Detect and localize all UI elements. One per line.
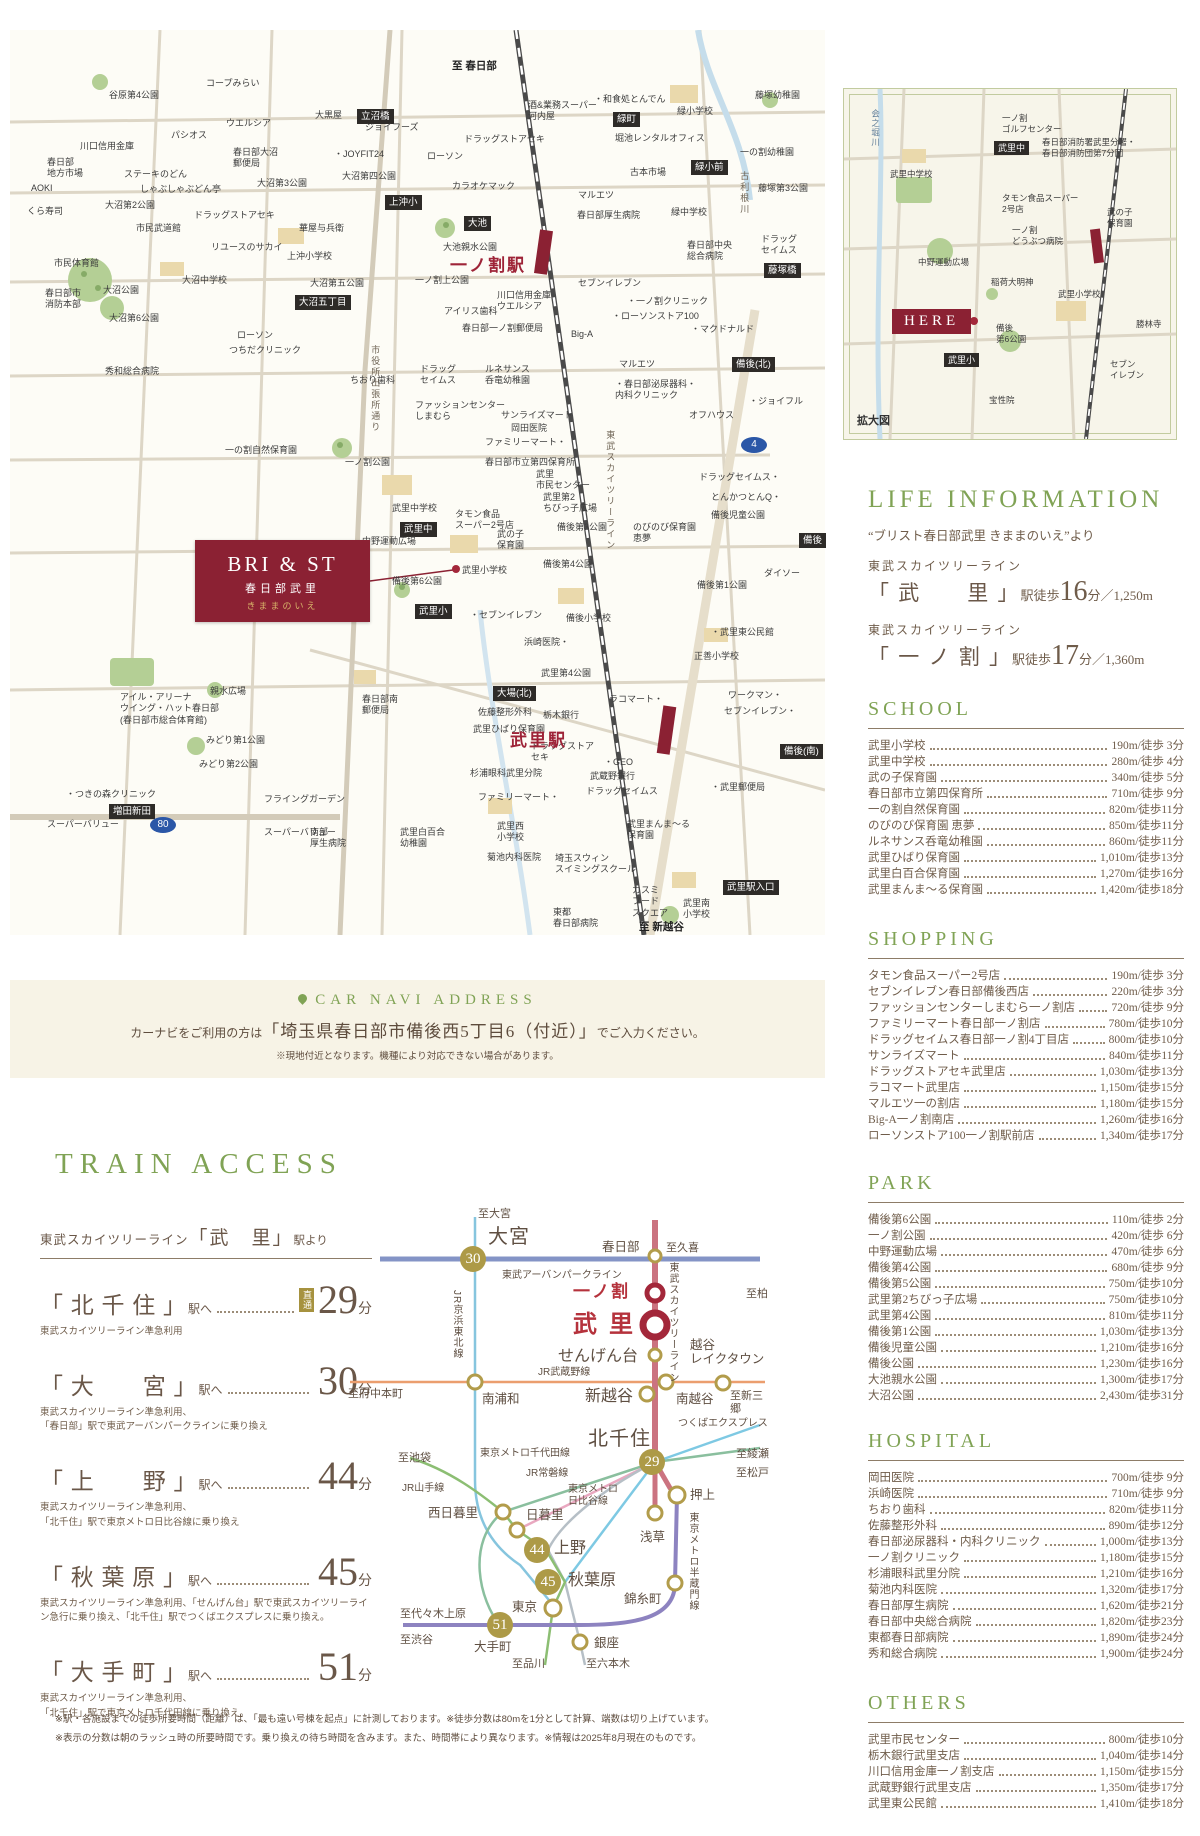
facility-name: のびのび保育園 恵夢 bbox=[868, 818, 974, 834]
facility-distance: 1,180m/徒歩15分 bbox=[1100, 1096, 1184, 1112]
facility-row: 一ノ割公園 420m/徒歩 6分 bbox=[868, 1228, 1184, 1244]
map-label: しゃぶしゃぶどん亭 bbox=[140, 184, 221, 195]
facility-name: 武里ひばり保育園 bbox=[868, 850, 960, 866]
map-label: 親水広場 bbox=[210, 686, 246, 697]
divider bbox=[868, 958, 1184, 959]
map-label: 武里第4公園 bbox=[541, 668, 591, 679]
dotted-leader bbox=[935, 1334, 1096, 1336]
life-information-subtitle: “ブリスト春日部武里 きままのいえ”より bbox=[868, 525, 1184, 544]
facility-row: 備後第6公園 110m/徒歩 2分 bbox=[868, 1212, 1184, 1228]
facility-distance: 780m/徒歩10分 bbox=[1109, 1016, 1184, 1032]
facility-distance: 800m/徒歩10分 bbox=[1109, 1732, 1184, 1748]
map-label: Big-A bbox=[571, 329, 593, 340]
train-access-entry: 「 大 宮 」 駅へ 30 分 東武スカイツリーライン準急利用、 「春日部」駅で… bbox=[40, 1361, 372, 1435]
footnote-line-1: ※駅・各施設までの徒歩所要時間（距離）は、「最も遠い号棟を起点」に計測しておりま… bbox=[55, 1710, 735, 1729]
facility-distance: 1,340m/徒歩17分 bbox=[1100, 1128, 1184, 1144]
park-rows: 備後第6公園 110m/徒歩 2分 一ノ割公園 420m/徒歩 6分 中野運動広… bbox=[868, 1212, 1184, 1404]
rail-line-name: 東武スカイツリーライン bbox=[868, 621, 1184, 638]
shopping-section: SHOPPING タモン食品スーパー2号店 190m/徒歩 3分 セブンイレブン… bbox=[868, 928, 1184, 1144]
map-label: ジョイフーズ bbox=[365, 122, 419, 133]
map-label: 武里小学校 bbox=[462, 565, 507, 576]
dotted-leader bbox=[987, 892, 1096, 894]
others-section: OTHERS 武里市民センター 800m/徒歩10分 栃木銀行武里支店 1,04… bbox=[868, 1692, 1184, 1812]
map-label: リユースのサカイ bbox=[211, 242, 283, 253]
facility-name: 佐藤整形外科 bbox=[868, 1518, 937, 1534]
map-label: 栃木銀行 bbox=[543, 710, 579, 721]
life-line-2: 東武スカイツリーライン 「 一 ノ 割 」駅徒歩17分／1,360m bbox=[868, 621, 1184, 672]
facility-distance: 1,270m/徒歩16分 bbox=[1100, 866, 1184, 882]
dotted-leader bbox=[1079, 1010, 1107, 1012]
area-map: 谷原第4公園コープみらい至 春日部酒&業務スーパー 河内屋・和食処とんでん緑小学… bbox=[10, 30, 825, 935]
map-label: ラコマート・ bbox=[609, 694, 663, 705]
destination-station: 「 秋 葉 原 」 bbox=[40, 1558, 187, 1592]
destination-suffix: 駅へ bbox=[199, 1476, 223, 1493]
map-label: 大沼第四公園 bbox=[342, 171, 396, 182]
route-notes: 東武スカイツリーライン準急利用、 「北千住」駅で東京メトロ日比谷線に乗り換え bbox=[40, 1501, 372, 1530]
facility-row: 栃木銀行武里支店 1,040m/徒歩14分 bbox=[868, 1748, 1184, 1764]
facility-name: 武里第4公園 bbox=[868, 1308, 931, 1324]
map-label: ・武里郵便局 bbox=[711, 782, 765, 793]
facility-name: ちおり歯科 bbox=[868, 1502, 926, 1518]
dotted-leader bbox=[935, 1318, 1105, 1320]
destination-suffix: 駅へ bbox=[188, 1572, 212, 1589]
map-label: セブンイレブン bbox=[578, 278, 641, 289]
map-label: カスミ フード スクエア bbox=[632, 885, 668, 919]
diagram-label: つくばエクスプレス bbox=[678, 1418, 768, 1430]
facility-distance: 1,150m/徒歩15分 bbox=[1100, 1080, 1184, 1096]
divider bbox=[40, 1258, 372, 1259]
facility-row: ドラッグセイムス春日部一ノ割4丁目店 800m/徒歩10分 bbox=[868, 1032, 1184, 1048]
facility-name: 備後第6公園 bbox=[868, 1212, 931, 1228]
dotted-leader bbox=[964, 1560, 1096, 1562]
map-label: ・和食処とんでん bbox=[594, 94, 666, 105]
facility-distance: 700m/徒歩 9分 bbox=[1111, 1470, 1184, 1486]
dotted-leader bbox=[228, 1392, 309, 1394]
dotted-leader bbox=[964, 1576, 1096, 1578]
map-label: 酒&業務スーパー 河内屋 bbox=[528, 100, 597, 123]
facility-row: 備後第5公園 750m/徒歩10分 bbox=[868, 1276, 1184, 1292]
diagram-label: 武 里 bbox=[573, 1312, 636, 1340]
facility-name: ローソンストア100一ノ割駅前店 bbox=[868, 1128, 1035, 1144]
facility-row: ラコマート武里店 1,150m/徒歩15分 bbox=[868, 1080, 1184, 1096]
facility-row: 大池親水公園 1,300m/徒歩17分 bbox=[868, 1372, 1184, 1388]
facility-distance: 1,900m/徒歩24分 bbox=[1100, 1646, 1184, 1662]
dotted-leader bbox=[964, 860, 1096, 862]
facility-name: 大池親水公園 bbox=[868, 1372, 937, 1388]
facility-row: 佐藤整形外科 890m/徒歩12分 bbox=[868, 1518, 1184, 1534]
map-label: 正善小学校 bbox=[694, 651, 739, 662]
facility-name: 武里小学校 bbox=[868, 738, 926, 754]
diagram-label: JR山手線 bbox=[402, 1483, 444, 1495]
divider bbox=[868, 1460, 1184, 1461]
life-information-title: LIFE INFORMATION bbox=[868, 486, 1184, 514]
map-label: 一の割自然保育園 bbox=[225, 445, 297, 456]
life-line-1: 東武スカイツリーライン 「 武 里 」駅徒歩16分／1,250m bbox=[868, 557, 1184, 608]
facility-row: サンライズマート 840m/徒歩11分 bbox=[868, 1048, 1184, 1064]
facility-distance: 800m/徒歩10分 bbox=[1109, 1032, 1184, 1048]
map-label: 一ノ割上公園 bbox=[415, 275, 469, 286]
map-label: 埼玉スウィン スイミングスクール bbox=[555, 853, 636, 876]
facility-distance: 1,040m/徒歩14分 bbox=[1100, 1748, 1184, 1764]
facility-name: 一ノ割クリニック bbox=[868, 1550, 960, 1566]
map-label: ワークマン・ bbox=[728, 690, 782, 701]
diagram-label: 東武アーバンパークライン bbox=[502, 1270, 622, 1282]
facility-row: 武蔵野銀行武里支店 1,350m/徒歩17分 bbox=[868, 1780, 1184, 1796]
dotted-leader bbox=[918, 1496, 1107, 1498]
facility-name: 一の割自然保育園 bbox=[868, 802, 960, 818]
facility-row: 武の子保育園 340m/徒歩 5分 bbox=[868, 770, 1184, 786]
facility-row: タモン食品スーパー2号店 190m/徒歩 3分 bbox=[868, 968, 1184, 984]
destination-station: 「 上 野 」 bbox=[40, 1462, 198, 1496]
facility-distance: 710m/徒歩 9分 bbox=[1111, 1486, 1184, 1502]
divider bbox=[868, 1722, 1184, 1723]
map-label: 大沼五丁目 bbox=[295, 295, 351, 310]
map-label: ファッションセンター しまむら bbox=[415, 400, 505, 423]
diagram-label: 日暮里 bbox=[526, 1508, 564, 1522]
train-access-entry: 「 秋 葉 原 」 駅へ 45 分 東武スカイツリーライン準急利用、「せんげん台… bbox=[40, 1552, 372, 1626]
facility-name: 杉浦眼科武里分院 bbox=[868, 1566, 960, 1582]
map-label: カラオケマック bbox=[452, 181, 515, 192]
school-title: SCHOOL bbox=[868, 698, 1184, 721]
diagram-label: 45 bbox=[535, 1569, 561, 1595]
facility-name: サンライズマート bbox=[868, 1048, 960, 1064]
property-tagline: きままのいえ bbox=[195, 599, 370, 612]
map-label: スーパーバリュー bbox=[47, 819, 119, 830]
map-label: 備後第6公園 bbox=[392, 576, 442, 587]
route-notes: 東武スカイツリーライン準急利用、「せんげん台」駅で東武スカイツリーライン急行に乗… bbox=[40, 1597, 372, 1626]
facility-name: マルエツ一の割店 bbox=[868, 1096, 960, 1112]
diagram-label: 越谷 レイクタウン bbox=[690, 1338, 764, 1367]
map-label: ・武里東公民館 bbox=[711, 627, 774, 638]
facility-row: 春日部中央総合病院 1,820m/徒歩23分 bbox=[868, 1614, 1184, 1630]
dotted-leader bbox=[953, 1608, 1096, 1610]
facility-name: 春日部泌尿器科・内科クリニック bbox=[868, 1534, 1041, 1550]
map-label: 春日部市 消防本部 bbox=[45, 288, 81, 311]
map-label: 大沼公園 bbox=[103, 285, 139, 296]
facility-distance: 420m/徒歩 6分 bbox=[1111, 1228, 1184, 1244]
map-label: ・一ノ割クリニック bbox=[627, 296, 708, 307]
dotted-leader bbox=[978, 828, 1105, 830]
diagram-label: 上野 bbox=[554, 1540, 586, 1558]
facility-distance: 1,620m/徒歩21分 bbox=[1100, 1598, 1184, 1614]
map-label: 武里南 小学校 bbox=[683, 898, 710, 921]
map-label: くら寿司 bbox=[27, 206, 63, 217]
facility-name: 武蔵野銀行武里支店 bbox=[868, 1780, 972, 1796]
facility-row: 川口信用金庫一ノ割支店 1,150m/徒歩15分 bbox=[868, 1764, 1184, 1780]
facility-name: 武里東公民館 bbox=[868, 1796, 937, 1812]
map-label: 大池親水公園 bbox=[443, 242, 497, 253]
map-label: 藤塚橋 bbox=[764, 263, 801, 278]
facility-row: マルエツ一の割店 1,180m/徒歩15分 bbox=[868, 1096, 1184, 1112]
inset-label: 一ノ割 ゴルフセンター bbox=[1002, 113, 1062, 134]
map-label: ドラッグ セイムス bbox=[420, 364, 456, 387]
map-label: ローソン bbox=[427, 151, 463, 162]
diagram-label: JR常磐線 bbox=[526, 1468, 568, 1480]
map-label: 古本市場 bbox=[630, 167, 666, 178]
dotted-leader bbox=[976, 1790, 1096, 1792]
map-label: セブンイレブン・ bbox=[724, 706, 796, 717]
property-logo-box: BRI & ST 春日部武里 きままのいえ bbox=[195, 540, 370, 622]
facility-row: ちおり歯科 820m/徒歩11分 bbox=[868, 1502, 1184, 1518]
facility-row: 春日部厚生病院 1,620m/徒歩21分 bbox=[868, 1598, 1184, 1614]
others-title: OTHERS bbox=[868, 1692, 1184, 1715]
footnotes: ※駅・各施設までの徒歩所要時間（距離）は、「最も遠い号棟を起点」に計測しておりま… bbox=[55, 1710, 735, 1748]
facility-name: 秀和総合病院 bbox=[868, 1646, 937, 1662]
map-label: 大沼中学校 bbox=[182, 275, 227, 286]
map-label: 春日部一ノ割郵便局 bbox=[462, 323, 543, 334]
destination-suffix: 駅へ bbox=[199, 1381, 223, 1398]
inset-label: 備後 第6公園 bbox=[996, 323, 1026, 344]
map-label: 佐藤整形外科 bbox=[478, 707, 532, 718]
map-label: 春日部中央 総合病院 bbox=[687, 240, 732, 263]
diagram-label: 錦糸町 bbox=[624, 1592, 662, 1606]
station-name: 「 一 ノ 割 」 bbox=[868, 645, 1012, 669]
facility-name: 備後第4公園 bbox=[868, 1260, 931, 1276]
facility-row: 武里小学校 190m/徒歩 3分 bbox=[868, 738, 1184, 754]
map-label: のびのび保育園 恵夢 bbox=[633, 522, 696, 545]
facility-name: ファミリーマート春日部一ノ割店 bbox=[868, 1016, 1041, 1032]
map-label: 岡田医院 bbox=[511, 423, 547, 434]
facility-name: 栃木銀行武里支店 bbox=[868, 1748, 960, 1764]
facility-distance: 190m/徒歩 3分 bbox=[1111, 968, 1184, 984]
facility-name: 備後第1公園 bbox=[868, 1324, 931, 1340]
map-label: サンライズマート bbox=[501, 410, 573, 421]
facility-distance: 220m/徒歩 3分 bbox=[1111, 984, 1184, 1000]
facility-distance: 190m/徒歩 3分 bbox=[1111, 738, 1184, 754]
facility-row: 武里第4公園 810m/徒歩11分 bbox=[868, 1308, 1184, 1324]
dotted-leader bbox=[999, 1774, 1096, 1776]
facility-name: 武里白百合保育園 bbox=[868, 866, 960, 882]
dotted-leader bbox=[930, 764, 1108, 766]
inset-label: 春日部消防署武里分署・ 春日部消防団第7分団 bbox=[1042, 137, 1136, 158]
facility-name: 備後公園 bbox=[868, 1356, 914, 1372]
diagram-label: JR京浜東北線 bbox=[450, 1290, 462, 1359]
map-label: ドラッグセイムス bbox=[586, 786, 658, 797]
dotted-leader bbox=[1045, 1544, 1096, 1546]
map-label: 備後小学校 bbox=[566, 613, 611, 624]
map-label: 至 新越谷 bbox=[639, 921, 684, 934]
dotted-leader bbox=[930, 1512, 1106, 1514]
facility-distance: 1,150m/徒歩15分 bbox=[1100, 1764, 1184, 1780]
diagram-label: 東京 bbox=[512, 1600, 537, 1614]
map-label: 備後 bbox=[799, 533, 826, 548]
facility-distance: 470m/徒歩 6分 bbox=[1111, 1244, 1184, 1260]
dotted-leader bbox=[958, 1122, 1096, 1124]
map-label: 春日部厚生病院 bbox=[577, 210, 640, 221]
map-label: 市役所出張所通り bbox=[369, 345, 380, 433]
map-label: 緑中学校 bbox=[671, 207, 707, 218]
car-navi-post: でご入力ください。 bbox=[597, 1026, 705, 1040]
rail-line-name: 東武スカイツリーライン bbox=[868, 557, 1184, 574]
facility-name: 東都春日部病院 bbox=[868, 1630, 949, 1646]
map-label: 大沼第五公園 bbox=[310, 278, 364, 289]
map-pin-icon bbox=[296, 992, 309, 1005]
map-label: 武里 市民センター bbox=[536, 469, 590, 492]
map-label: ダイソー bbox=[764, 568, 800, 579]
facility-distance: 1,260m/徒歩16分 bbox=[1100, 1112, 1184, 1128]
dotted-leader bbox=[964, 1758, 1096, 1760]
map-label: 武里小 bbox=[415, 604, 452, 619]
diagram-label: JR武蔵野線 bbox=[538, 1367, 590, 1379]
facility-distance: 1,010m/徒歩13分 bbox=[1100, 850, 1184, 866]
train-access-title: TRAIN ACCESS bbox=[55, 1148, 372, 1181]
map-label: 藤塚幼稚園 bbox=[755, 90, 800, 101]
map-label: 大黒屋 bbox=[315, 110, 342, 121]
facility-distance: 280m/徒歩 4分 bbox=[1111, 754, 1184, 770]
facility-row: 菊池内科医院 1,320m/徒歩17分 bbox=[868, 1582, 1184, 1598]
facility-row: 杉浦眼科武里分院 1,210m/徒歩16分 bbox=[868, 1566, 1184, 1582]
diagram-label: 東武スカイツリーライン bbox=[666, 1262, 678, 1383]
facility-row: ファッションセンターしまむら一ノ割店 720m/徒歩 9分 bbox=[868, 1000, 1184, 1016]
train-access-section: TRAIN ACCESS 東武スカイツリーライン「武 里」駅より 「 北 千 住… bbox=[40, 1148, 372, 1721]
map-label: 一ノ割駅 bbox=[450, 255, 526, 276]
map-label: 藤塚第3公園 bbox=[758, 183, 808, 194]
facility-name: 一ノ割公園 bbox=[868, 1228, 926, 1244]
park-section: PARK 備後第6公園 110m/徒歩 2分 一ノ割公園 420m/徒歩 6分 … bbox=[868, 1172, 1184, 1404]
from-suffix: 駅より bbox=[294, 1235, 328, 1247]
map-label: オフハウス bbox=[689, 410, 734, 421]
facility-name: 武の子保育園 bbox=[868, 770, 937, 786]
train-access-from: 東武スカイツリーライン「武 里」駅より bbox=[40, 1223, 372, 1250]
dotted-leader bbox=[987, 844, 1105, 846]
dotted-leader bbox=[930, 1238, 1108, 1240]
facility-row: セブンイレブン春日部備後西店 220m/徒歩 3分 bbox=[868, 984, 1184, 1000]
map-label: 備後第3公園 bbox=[557, 522, 607, 533]
car-navi-pre: カーナビをご利用の方は bbox=[130, 1026, 262, 1040]
destination-suffix: 駅へ bbox=[188, 1667, 212, 1684]
destination-suffix: 駅へ bbox=[188, 1300, 212, 1317]
life-information-section: LIFE INFORMATION “ブリスト春日部武里 きままのいえ”より 東武… bbox=[868, 486, 1184, 672]
diagram-label: 至品川 bbox=[512, 1658, 545, 1671]
facility-row: 春日部市立第四保育所 710m/徒歩 9分 bbox=[868, 786, 1184, 802]
map-label: 市民体育館 bbox=[54, 258, 99, 269]
map-label: 春日部南 郵便局 bbox=[362, 694, 398, 717]
facility-distance: 110m/徒歩 2分 bbox=[1112, 1212, 1184, 1228]
map-label: 浜崎医院・ bbox=[524, 637, 569, 648]
diagram-label: 至柏 bbox=[746, 1288, 768, 1301]
diagram-label: 44 bbox=[524, 1537, 550, 1563]
dotted-leader bbox=[941, 1592, 1096, 1594]
dotted-leader bbox=[1010, 1074, 1096, 1076]
map-label: コープみらい bbox=[206, 78, 259, 89]
dotted-leader bbox=[935, 1286, 1104, 1288]
facility-row: 備後公園 1,230m/徒歩16分 bbox=[868, 1356, 1184, 1372]
dotted-leader bbox=[1039, 1138, 1096, 1140]
others-rows: 武里市民センター 800m/徒歩10分 栃木銀行武里支店 1,040m/徒歩14… bbox=[868, 1732, 1184, 1812]
facility-distance: 1,230m/徒歩16分 bbox=[1100, 1356, 1184, 1372]
facility-distance: 1,030m/徒歩13分 bbox=[1100, 1324, 1184, 1340]
car-navi-title: CAR NAVI ADDRESS bbox=[10, 992, 825, 1009]
map-label: 秀和総合病院 bbox=[105, 366, 159, 377]
facility-distance: 750m/徒歩10分 bbox=[1109, 1292, 1184, 1308]
map-label: 武里白百合 幼稚園 bbox=[400, 827, 445, 850]
walk-minutes: 16 bbox=[1060, 576, 1088, 607]
facility-name: ラコマート武里店 bbox=[868, 1080, 960, 1096]
dotted-leader bbox=[1045, 1026, 1105, 1028]
diagram-label: 秋葉原 bbox=[568, 1572, 616, 1590]
walk-distance: 分／1,250m bbox=[1088, 588, 1153, 603]
facility-distance: 1,180m/徒歩15分 bbox=[1100, 1550, 1184, 1566]
map-label: とんかつとんQ・ bbox=[711, 492, 781, 503]
facility-distance: 1,320m/徒歩17分 bbox=[1100, 1582, 1184, 1598]
facility-row: ローソンストア100一ノ割駅前店 1,340m/徒歩17分 bbox=[868, 1128, 1184, 1144]
map-label: 春日部市立第四保育所 bbox=[485, 457, 575, 468]
map-label: 大沼第2公園 bbox=[105, 200, 155, 211]
inset-label: 拡大図 bbox=[857, 415, 890, 429]
map-label: 春日部大沼 郵便局 bbox=[233, 147, 278, 170]
car-navi-banner: CAR NAVI ADDRESS カーナビをご利用の方は「埼玉県春日部市備後西5… bbox=[10, 980, 825, 1078]
map-label: ・セブンイレブン bbox=[470, 610, 542, 621]
dotted-leader bbox=[953, 1640, 1096, 1642]
shopping-title: SHOPPING bbox=[868, 928, 1184, 951]
map-label: 備後(北) bbox=[732, 357, 775, 372]
dotted-leader bbox=[964, 876, 1096, 878]
train-access-entry: 「 上 野 」 駅へ 44 分 東武スカイツリーライン準急利用、 「北千住」駅で… bbox=[40, 1456, 372, 1530]
diagram-label: 大宮 bbox=[488, 1226, 530, 1249]
map-label: AOKI bbox=[31, 183, 53, 194]
inset-label: HERE bbox=[892, 309, 971, 334]
map-label: 武里駅 bbox=[510, 730, 567, 751]
facility-row: 浜崎医院 710m/徒歩 9分 bbox=[868, 1486, 1184, 1502]
inset-label: 中野運動広場 bbox=[918, 257, 969, 268]
footnote-line-2: ※表示の分数は朝のラッシュ時の所要時間です。乗り換えの待ち時間を含みます。また、… bbox=[55, 1729, 735, 1748]
map-label: パシオス bbox=[171, 130, 207, 141]
dotted-leader bbox=[941, 1806, 1096, 1808]
map-label: ・春日部泌尿器科・ 内科クリニック bbox=[615, 379, 696, 402]
walk-minutes: 17 bbox=[1051, 640, 1079, 671]
property-name-jp: 春日部武里 bbox=[195, 580, 370, 596]
diagram-label: 北千住 bbox=[588, 1428, 651, 1451]
map-label: ・ローソンストア100 bbox=[612, 311, 699, 322]
inset-label: 勝林寺 bbox=[1136, 319, 1162, 330]
map-label: 武里駅入口 bbox=[723, 880, 779, 895]
dotted-leader bbox=[217, 1311, 294, 1313]
diagram-label: 至久喜 bbox=[666, 1242, 699, 1255]
map-label: 緑町 bbox=[613, 112, 640, 127]
map-label: 市民武道館 bbox=[136, 223, 181, 234]
facility-name: 備後第5公園 bbox=[868, 1276, 931, 1292]
dotted-leader bbox=[935, 1222, 1108, 1224]
diagram-label: 南浦和 bbox=[482, 1392, 520, 1406]
dotted-leader bbox=[987, 796, 1107, 798]
school-rows: 武里小学校 190m/徒歩 3分 武里中学校 280m/徒歩 4分 武の子保育園… bbox=[868, 738, 1184, 898]
diagram-label: 51 bbox=[487, 1612, 513, 1638]
map-label: ・ジョイフル bbox=[749, 396, 803, 407]
facility-distance: 2,430m/徒歩31分 bbox=[1100, 1388, 1184, 1404]
train-entries: 「 北 千 住 」 駅へ 直通 29 分 東武スカイツリーライン準急利用 「 大… bbox=[40, 1280, 372, 1721]
destination-station: 「 大 宮 」 bbox=[40, 1367, 198, 1401]
inset-label: 会之堀川 bbox=[870, 109, 881, 147]
diagram-label: 新越谷 bbox=[585, 1388, 633, 1406]
walk-label: 駅徒歩 bbox=[1012, 652, 1051, 667]
facility-name: ドラッグストアセキ武里店 bbox=[868, 1064, 1006, 1080]
map-label: 一ノ割公園 bbox=[345, 457, 390, 468]
map-label: 武里第2 ちびっ子広場 bbox=[543, 492, 597, 515]
facility-distance: 1,350m/徒歩17分 bbox=[1100, 1780, 1184, 1796]
facility-distance: 1,890m/徒歩24分 bbox=[1100, 1630, 1184, 1646]
map-label: 春日部 地方市場 bbox=[47, 157, 83, 180]
facility-distance: 850m/徒歩11分 bbox=[1109, 818, 1184, 834]
map-label: フライングガーデン bbox=[264, 794, 345, 805]
facility-row: 武里第2ちびっ子広場 750m/徒歩10分 bbox=[868, 1292, 1184, 1308]
facility-distance: 820m/徒歩11分 bbox=[1109, 802, 1184, 818]
divider bbox=[868, 1202, 1184, 1203]
divider bbox=[868, 728, 1184, 729]
facility-row: 東都春日部病院 1,890m/徒歩24分 bbox=[868, 1630, 1184, 1646]
map-label: 菊池内科医院 bbox=[487, 852, 541, 863]
facility-row: ルネサンス呑竜幼稚園 860m/徒歩11分 bbox=[868, 834, 1184, 850]
diagram-label: 至新三郷 bbox=[730, 1390, 770, 1415]
